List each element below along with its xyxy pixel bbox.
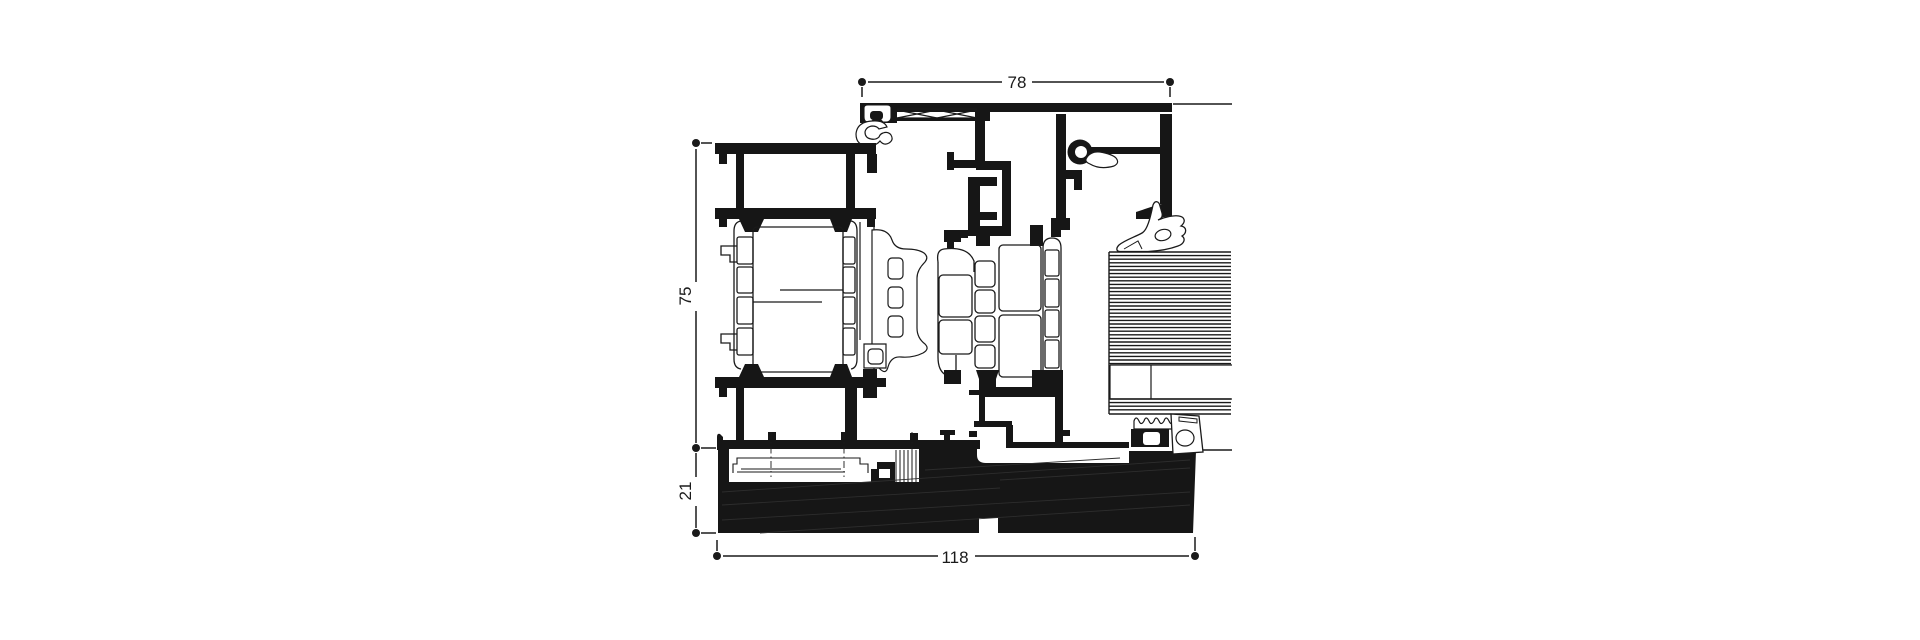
svg-text:118: 118: [941, 548, 968, 567]
svg-text:78: 78: [1008, 73, 1027, 92]
svg-text:21: 21: [676, 482, 695, 501]
svg-text:75: 75: [676, 287, 695, 306]
